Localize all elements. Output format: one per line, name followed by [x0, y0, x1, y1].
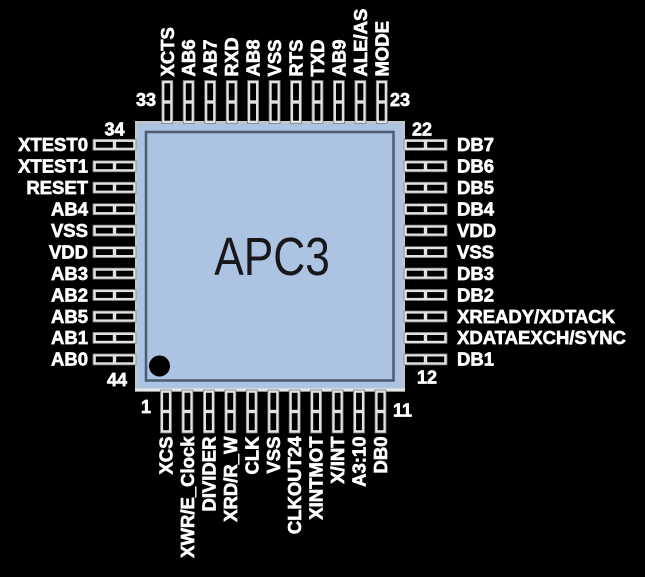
svg-text:XCS: XCS: [156, 437, 177, 475]
svg-text:DB5: DB5: [457, 177, 494, 198]
svg-text:44: 44: [107, 370, 127, 390]
svg-text:XRD/R_W: XRD/R_W: [220, 436, 241, 522]
svg-text:AB1: AB1: [51, 327, 88, 348]
svg-text:33: 33: [136, 90, 156, 110]
svg-text:AB0: AB0: [51, 349, 88, 370]
svg-text:22: 22: [412, 120, 432, 140]
svg-text:AB4: AB4: [51, 199, 89, 220]
svg-text:AB2: AB2: [51, 284, 88, 305]
svg-text:AB8: AB8: [243, 39, 264, 76]
svg-text:DB6: DB6: [457, 156, 494, 177]
svg-text:XWR/E_Clock: XWR/E_Clock: [177, 436, 198, 558]
svg-text:AB9: AB9: [328, 39, 349, 76]
svg-text:AB3: AB3: [51, 263, 88, 284]
svg-text:AB6: AB6: [178, 39, 199, 76]
svg-text:VDD: VDD: [49, 241, 88, 262]
svg-text:XDATAEXCH/SYNC: XDATAEXCH/SYNC: [457, 327, 626, 348]
svg-text:VSS: VSS: [263, 437, 284, 474]
svg-text:VSS: VSS: [264, 39, 285, 76]
svg-text:DB7: DB7: [457, 134, 494, 155]
svg-text:VDD: VDD: [457, 220, 496, 241]
svg-text:VSS: VSS: [457, 241, 494, 262]
svg-text:DB2: DB2: [457, 284, 494, 305]
svg-text:RXD: RXD: [221, 37, 242, 76]
svg-text:DB3: DB3: [457, 263, 494, 284]
svg-text:APC3: APC3: [214, 227, 330, 287]
svg-text:A3:10: A3:10: [349, 437, 370, 487]
svg-text:CLKOUT24: CLKOUT24: [284, 436, 305, 534]
svg-text:DB1: DB1: [457, 349, 494, 370]
svg-text:DB4: DB4: [457, 199, 495, 220]
svg-text:XINTMOT: XINTMOT: [306, 436, 327, 520]
svg-text:DB0: DB0: [370, 437, 391, 474]
svg-text:VSS: VSS: [51, 220, 88, 241]
svg-text:12: 12: [417, 368, 437, 388]
svg-text:MODE: MODE: [371, 21, 392, 77]
svg-text:23: 23: [390, 90, 410, 110]
svg-text:11: 11: [393, 401, 412, 421]
svg-text:TXD: TXD: [307, 40, 328, 77]
svg-text:34: 34: [104, 120, 124, 140]
svg-text:AB5: AB5: [51, 306, 88, 327]
svg-text:RESET: RESET: [26, 177, 88, 198]
svg-text:X/INT: X/INT: [327, 436, 348, 484]
svg-text:ALE/AS: ALE/AS: [350, 9, 371, 77]
svg-text:XTEST1: XTEST1: [18, 156, 88, 177]
svg-text:XTEST0: XTEST0: [18, 134, 88, 155]
svg-text:DIVIDER: DIVIDER: [198, 437, 219, 512]
svg-text:XCTS: XCTS: [157, 27, 178, 76]
svg-text:XREADY/XDTACK: XREADY/XDTACK: [457, 306, 616, 327]
svg-text:1: 1: [141, 397, 151, 417]
svg-text:CLK: CLK: [241, 436, 262, 475]
svg-text:AB7: AB7: [200, 39, 221, 76]
svg-text:RTS: RTS: [286, 40, 307, 77]
